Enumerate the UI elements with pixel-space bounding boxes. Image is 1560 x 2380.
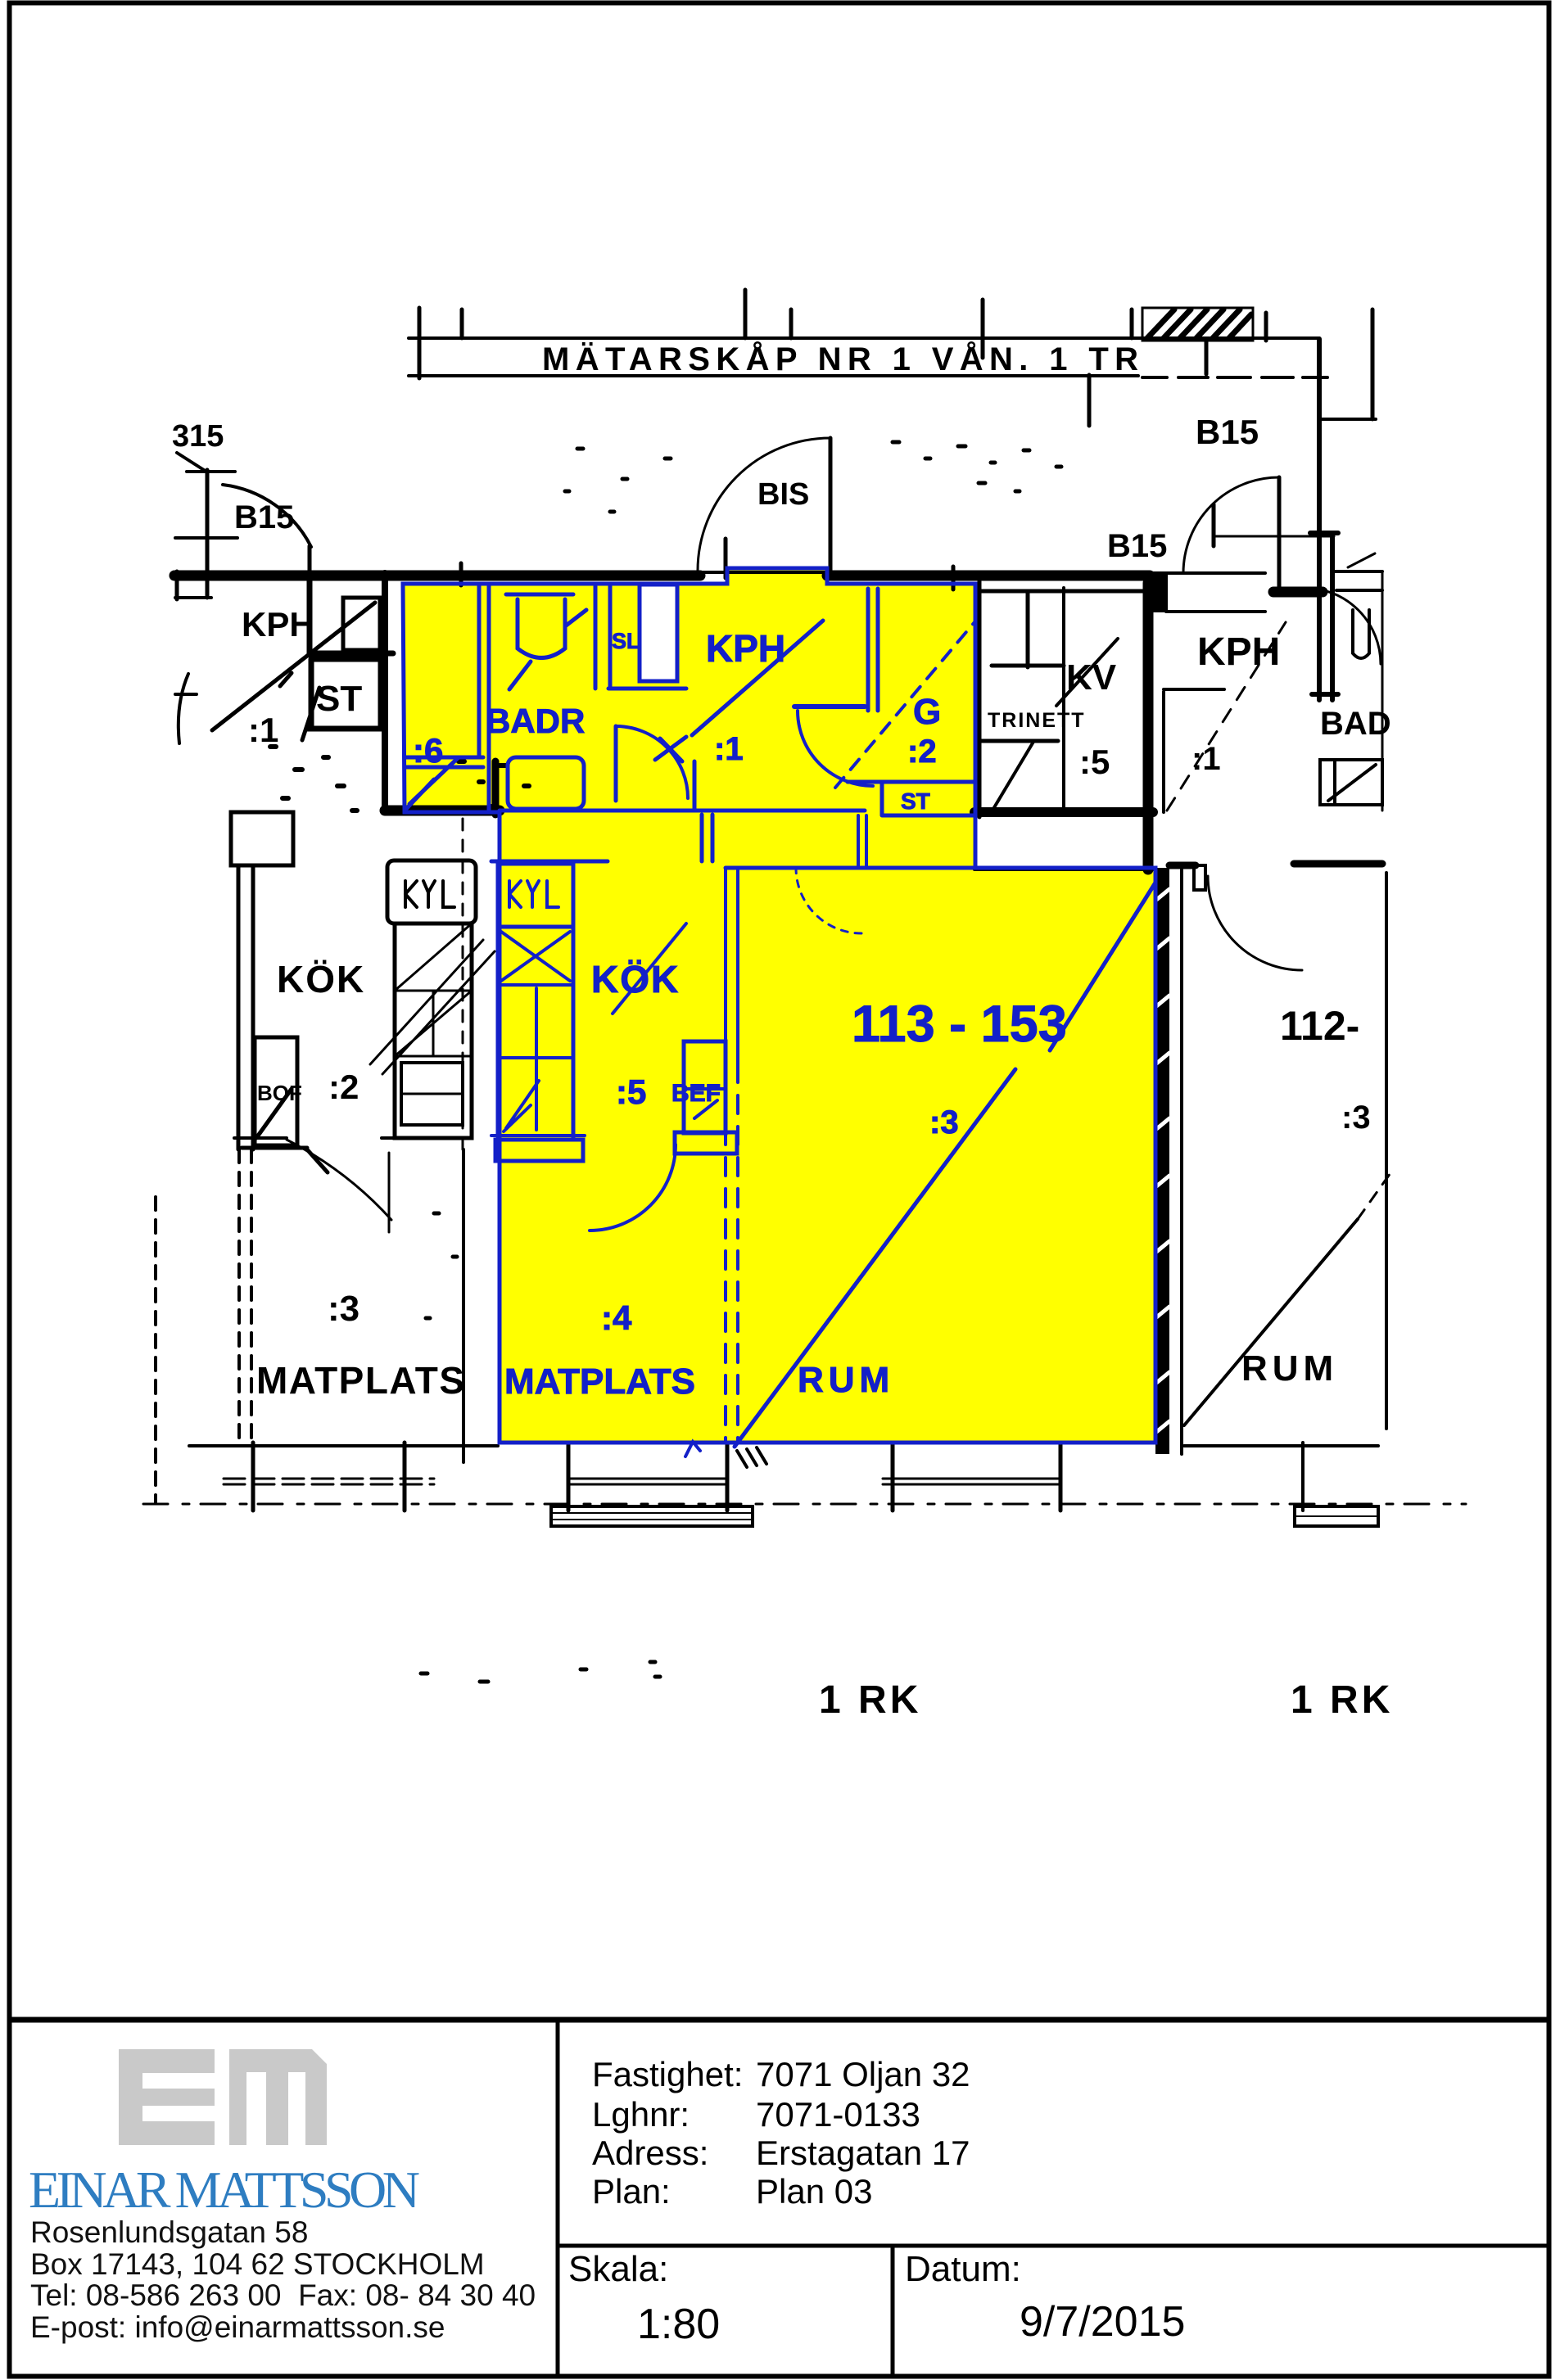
svg-text:KÖK: KÖK	[277, 958, 365, 1000]
svg-text:E-post: info@einarmattsson.se: E-post: info@einarmattsson.se	[30, 2310, 445, 2344]
svg-text:G: G	[913, 692, 941, 732]
svg-text:TRINETT: TRINETT	[988, 709, 1086, 732]
svg-text:BAD: BAD	[1320, 706, 1391, 742]
svg-text:B15: B15	[1107, 528, 1167, 564]
svg-text::5: :5	[616, 1073, 646, 1111]
svg-text:Box 17143, 104 62 STOCKHOLM: Box 17143, 104 62 STOCKHOLM	[30, 2247, 485, 2281]
svg-text:Skala:: Skala:	[568, 2249, 668, 2289]
svg-text::4: :4	[601, 1298, 632, 1337]
svg-text:Plan:: Plan:	[592, 2172, 671, 2211]
svg-text:KV: KV	[1066, 657, 1117, 698]
svg-text::3: :3	[328, 1289, 359, 1329]
svg-text:Fastighet:: Fastighet:	[592, 2055, 743, 2093]
svg-text:SL: SL	[612, 629, 640, 653]
svg-text:Datum:: Datum:	[905, 2249, 1021, 2289]
svg-text:KPH: KPH	[242, 605, 314, 644]
svg-text::1: :1	[1191, 741, 1221, 777]
svg-text:9/7/2015: 9/7/2015	[1020, 2298, 1185, 2346]
svg-text::3: :3	[929, 1104, 959, 1140]
svg-text:BADR: BADR	[486, 702, 585, 740]
svg-text:ST: ST	[316, 679, 362, 719]
svg-text:EINAR MATTSSON: EINAR MATTSSON	[29, 2161, 420, 2219]
svg-text:B15: B15	[1196, 413, 1259, 451]
svg-text::1: :1	[248, 711, 278, 749]
svg-text:315: 315	[172, 419, 224, 454]
svg-text:Rosenlundsgatan 58: Rosenlundsgatan 58	[30, 2215, 308, 2249]
svg-text:Plan 03: Plan 03	[756, 2172, 872, 2211]
svg-text:7071 Oljan 32: 7071 Oljan 32	[756, 2055, 970, 2093]
svg-text:112-: 112-	[1280, 1003, 1359, 1049]
svg-text:1:80: 1:80	[637, 2301, 720, 2348]
svg-text:Lghnr:: Lghnr:	[592, 2095, 690, 2134]
svg-text:Erstagatan 17: Erstagatan 17	[756, 2134, 970, 2172]
svg-text:1 RK: 1 RK	[819, 1678, 921, 1722]
svg-text::6: :6	[413, 731, 443, 770]
svg-text:MÄTARSKÅP NR 1 VÅN. 1 TR: MÄTARSKÅP NR 1 VÅN. 1 TR	[542, 341, 1138, 377]
svg-text:RUM: RUM	[1241, 1348, 1338, 1389]
svg-text:B15: B15	[234, 499, 294, 535]
svg-text:ST: ST	[901, 788, 930, 814]
svg-text:113 - 153: 113 - 153	[852, 996, 1067, 1053]
svg-text::3: :3	[1341, 1100, 1371, 1136]
svg-text::1: :1	[714, 731, 744, 767]
svg-text:MATPLATS: MATPLATS	[256, 1359, 464, 1402]
svg-text:7071-0133: 7071-0133	[756, 2095, 920, 2134]
svg-text:KÖK: KÖK	[591, 958, 680, 1000]
svg-text:BIS: BIS	[757, 477, 809, 512]
svg-text::2: :2	[907, 734, 937, 770]
svg-text::5: :5	[1079, 743, 1110, 781]
svg-text:MATPLATS: MATPLATS	[504, 1362, 695, 1402]
svg-text:Adress:: Adress:	[592, 2134, 708, 2172]
svg-text:1 RK: 1 RK	[1291, 1678, 1393, 1722]
svg-text::2: :2	[328, 1068, 359, 1106]
svg-text:RUM: RUM	[798, 1360, 894, 1400]
svg-text:Tel: 08-586 263 00 Fax: 08- 8: Tel: 08-586 263 00 Fax: 08- 84 30 40	[30, 2278, 536, 2312]
